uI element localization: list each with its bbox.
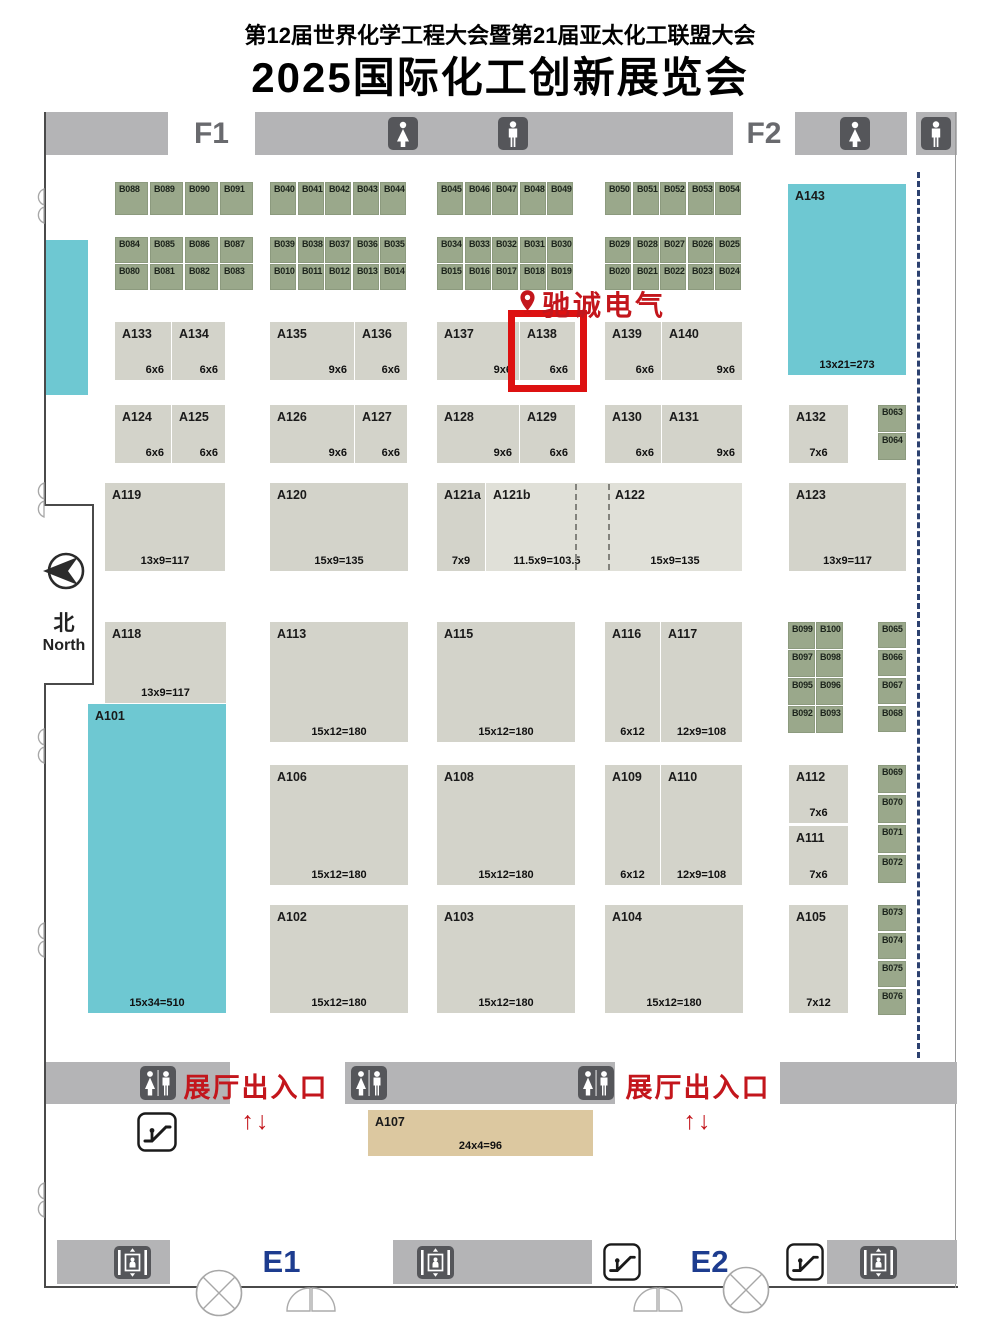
booth-id: B081	[154, 266, 175, 276]
right-wall	[955, 112, 956, 1288]
booth-A120: A12015x9=135	[270, 483, 408, 571]
door-arc-icon	[29, 922, 45, 958]
booth-B093: B093	[816, 706, 843, 733]
booth-id: B048	[524, 184, 545, 194]
top-wall-bar	[46, 112, 168, 155]
booth-size: 9x6	[494, 447, 512, 459]
booth-id: B087	[224, 239, 245, 249]
booth-id: B100	[820, 624, 841, 634]
booth-id: B028	[637, 239, 658, 249]
booth-id: B030	[551, 239, 572, 249]
booth-A115: A11515x12=180	[437, 622, 575, 742]
booth-A138: A1386x6	[520, 322, 575, 380]
booth-id: A122	[615, 488, 645, 502]
booth-B027: B027	[660, 237, 686, 263]
booth-id: A128	[444, 410, 474, 424]
north-notch-wall	[44, 683, 94, 685]
booth-B088: B088	[115, 182, 148, 215]
booth-size: 15x12=180	[437, 869, 575, 881]
booth-B011: B011	[298, 264, 324, 290]
booth-id: A110	[668, 770, 697, 784]
booth-id: B049	[551, 184, 572, 194]
booth-B086: B086	[185, 237, 218, 263]
booth-id: B097	[792, 652, 813, 662]
booth-B048: B048	[520, 182, 546, 215]
restroom-male-icon	[498, 117, 528, 150]
double-door-icon	[632, 1286, 684, 1312]
booth-A112: A1127x6	[789, 765, 848, 823]
booth-id: A103	[444, 910, 474, 924]
booth-A122: A12215x9=135	[608, 483, 742, 571]
booth-size: 12x9=108	[661, 726, 742, 738]
booth-B066: B066	[878, 650, 906, 676]
booth-id: B066	[882, 652, 903, 662]
compass-icon	[37, 587, 91, 604]
booth-B033: B033	[465, 237, 491, 263]
booth-A128: A1289x6	[437, 405, 519, 463]
booth-id: A129	[527, 410, 557, 424]
booth-A131: A1319x6	[662, 405, 742, 463]
booth-id: B089	[154, 184, 175, 194]
booth-size: 11.5x9=103.5	[486, 555, 608, 567]
booth-id: B093	[820, 708, 841, 718]
booth-size: 7x6	[789, 869, 848, 881]
booth-id: B017	[496, 266, 517, 276]
booth-A102: A10215x12=180	[270, 905, 408, 1013]
booth-A140: A1409x6	[662, 322, 742, 380]
booth-id: B042	[329, 184, 350, 194]
booth-id: A106	[277, 770, 307, 784]
booth-size: 7x9	[437, 555, 485, 567]
booth-size: 6x6	[382, 364, 400, 376]
booth-id: B039	[274, 239, 295, 249]
booth-A107: A10724x4=96	[368, 1110, 593, 1156]
booth-id: B092	[792, 708, 813, 718]
booth-id: B043	[357, 184, 378, 194]
booth-id: A138	[527, 327, 557, 341]
booth-B029: B029	[605, 237, 631, 263]
booth-size: 13x9=117	[789, 555, 906, 567]
booth-B054: B054	[715, 182, 741, 215]
booth-B082: B082	[185, 264, 218, 290]
north-label-en: North	[36, 637, 92, 655]
booth-size: 15x9=135	[270, 555, 408, 567]
booth-id: A105	[796, 910, 826, 924]
booth-B065: B065	[878, 622, 906, 648]
booth-size: 6x12	[605, 869, 660, 881]
booth-A121a: A121a7x9	[437, 483, 485, 571]
booth-id: B015	[441, 266, 462, 276]
double-door-icon	[285, 1286, 337, 1312]
escalator-icon	[785, 1243, 825, 1281]
hall-divider-dashed-line	[917, 172, 920, 1058]
booth-A117: A11712x9=108	[661, 622, 742, 742]
entrance-label-right: 展厅出入口 ↑↓	[618, 1066, 778, 1136]
booth-A133: A1336x6	[115, 322, 171, 380]
restroom-female-icon	[840, 117, 870, 150]
booth-A121b: A121b11.5x9=103.5	[486, 483, 608, 571]
booth-id: A102	[277, 910, 307, 924]
booth-size: 9x6	[717, 364, 735, 376]
booth-A116: A1166x12	[605, 622, 660, 742]
booth-A135: A1359x6	[270, 322, 354, 380]
booth-size: 7x6	[789, 447, 848, 459]
location-pin-icon	[518, 289, 537, 319]
hall-label-f2: F2	[733, 112, 795, 155]
exhibitor-marker: 驰诚电气	[518, 284, 666, 324]
booth-id: A131	[669, 410, 699, 424]
booth-id: A112	[796, 770, 825, 784]
booth-id: A121a	[444, 488, 481, 502]
booth-B035: B035	[380, 237, 406, 263]
elevator-icon	[114, 1246, 151, 1279]
booth-id: A119	[112, 488, 141, 502]
booth-id: B085	[154, 239, 175, 249]
booth-B044: B044	[380, 182, 406, 215]
booth-size: 6x6	[200, 364, 218, 376]
booth-A136: A1366x6	[355, 322, 407, 380]
booth-id: B075	[882, 963, 903, 973]
hall-label-f1: F1	[168, 112, 255, 155]
booth-B053: B053	[688, 182, 714, 215]
booth-size: 9x6	[329, 447, 347, 459]
booth-id: A104	[612, 910, 642, 924]
booth-B063: B063	[878, 405, 906, 432]
booth-A104: A10415x12=180	[605, 905, 743, 1013]
revolving-door-icon	[720, 1264, 772, 1316]
booth-id: A108	[444, 770, 474, 784]
booth-B052: B052	[660, 182, 686, 215]
booth-id: A125	[179, 410, 209, 424]
bottom-wall	[44, 1286, 958, 1288]
booth-id: B044	[384, 184, 405, 194]
booth-id: A123	[796, 488, 826, 502]
elevator-icon	[860, 1246, 897, 1279]
booth-B083: B083	[220, 264, 253, 290]
booth-B072: B072	[878, 855, 906, 883]
booth-id: B091	[224, 184, 245, 194]
booth-A134: A1346x6	[172, 322, 225, 380]
exhibitor-name: 驰诚电气	[542, 284, 666, 324]
booth-id: B099	[792, 624, 813, 634]
booth-id: B038	[302, 239, 323, 249]
booth-size: 15x9=135	[608, 555, 742, 567]
booth-id: A101	[95, 709, 125, 723]
booth-id: B051	[637, 184, 658, 194]
booth-B026: B026	[688, 237, 714, 263]
booth-B047: B047	[492, 182, 518, 215]
booth-id: B096	[820, 680, 841, 690]
booth-id: A111	[796, 831, 825, 845]
floorplan-canvas: 第12届世界化学工程大会暨第21届亚太化工联盟大会 2025国际化工创新展览会 …	[0, 0, 1000, 1328]
booth-id: B054	[719, 184, 740, 194]
booth-id: B037	[329, 239, 350, 249]
restroom-unisex-icon	[578, 1066, 614, 1100]
booth-id: B041	[302, 184, 323, 194]
booth-B032: B032	[492, 237, 518, 263]
booth-A126: A1269x6	[270, 405, 354, 463]
booth-id: B083	[224, 266, 245, 276]
booth-size: 6x6	[146, 447, 164, 459]
booth-B087: B087	[220, 237, 253, 263]
booth-size: 15x34=510	[88, 997, 226, 1009]
booth-B010: B010	[270, 264, 296, 290]
north-label-zh: 北	[36, 607, 92, 637]
booth-B017: B017	[492, 264, 518, 290]
door-arc-icon	[29, 728, 45, 764]
booth-id: B068	[882, 708, 903, 718]
booth-B050: B050	[605, 182, 631, 215]
booth-id: A118	[112, 627, 141, 641]
booth-size: 6x6	[636, 364, 654, 376]
booth-B090: B090	[185, 182, 218, 215]
door-arc-icon	[29, 1182, 45, 1218]
booth-size: 6x6	[200, 447, 218, 459]
booth-B097: B097	[788, 650, 815, 677]
booth-id: B064	[882, 435, 903, 445]
booth-id: B067	[882, 680, 903, 690]
booth-B043: B043	[353, 182, 379, 215]
entrance-arrows: ↑↓	[618, 1107, 778, 1136]
booth-id: A115	[444, 627, 473, 641]
booth-id: B036	[357, 239, 378, 249]
entrance-label-left: 展厅出入口 ↑↓	[176, 1066, 336, 1136]
booth-B092: B092	[788, 706, 815, 733]
teal-block	[46, 240, 88, 395]
booth-size: 24x4=96	[368, 1140, 593, 1152]
booth-B064: B064	[878, 433, 906, 460]
booth-A118: A11813x9=117	[105, 622, 226, 703]
booth-B028: B028	[633, 237, 659, 263]
booth-id: B023	[692, 266, 713, 276]
booth-A113: A11315x12=180	[270, 622, 408, 742]
booth-A110: A11012x9=108	[661, 765, 742, 885]
booth-id: A126	[277, 410, 307, 424]
booth-B024: B024	[715, 264, 741, 290]
booth-size: 13x21=273	[788, 359, 906, 371]
booth-divider-dashed-line	[575, 484, 577, 570]
restroom-male-icon	[921, 117, 951, 150]
booth-B080: B080	[115, 264, 148, 290]
booth-size: 6x6	[550, 447, 568, 459]
booth-B100: B100	[816, 622, 843, 649]
booth-id: A113	[277, 627, 306, 641]
booth-A137: A1379x6	[437, 322, 519, 380]
booth-B049: B049	[547, 182, 573, 215]
booth-B023: B023	[688, 264, 714, 290]
top-wall-bar	[255, 112, 733, 155]
booth-A127: A1276x6	[355, 405, 407, 463]
booth-A103: A10315x12=180	[437, 905, 575, 1013]
booth-size: 15x12=180	[437, 997, 575, 1009]
booth-A143: A14313x21=273	[788, 184, 906, 375]
booth-B040: B040	[270, 182, 296, 215]
booth-id: B046	[469, 184, 490, 194]
booth-A129: A1296x6	[520, 405, 575, 463]
booth-B084: B084	[115, 237, 148, 263]
booth-id: B031	[524, 239, 545, 249]
booth-B039: B039	[270, 237, 296, 263]
booth-id: B053	[692, 184, 713, 194]
booth-id: A133	[122, 327, 152, 341]
booth-size: 13x9=117	[105, 687, 226, 699]
booth-id: B022	[664, 266, 685, 276]
booth-A105: A1057x12	[789, 905, 848, 1013]
booth-id: A132	[796, 410, 826, 424]
booth-id: B010	[274, 266, 295, 276]
booth-B095: B095	[788, 678, 815, 705]
booth-size: 9x6	[329, 364, 347, 376]
booth-size: 12x9=108	[661, 869, 742, 881]
booth-id: B032	[496, 239, 517, 249]
booth-B067: B067	[878, 678, 906, 704]
booth-id: B074	[882, 935, 903, 945]
booth-size: 15x12=180	[270, 997, 408, 1009]
booth-id: A127	[362, 410, 392, 424]
booth-B041: B041	[298, 182, 324, 215]
booth-id: A109	[612, 770, 642, 784]
booth-A123: A12313x9=117	[789, 483, 906, 571]
booth-B045: B045	[437, 182, 463, 215]
booth-id: B045	[441, 184, 462, 194]
booth-id: A116	[612, 627, 641, 641]
booth-id: A143	[795, 189, 825, 203]
booth-id: B088	[119, 184, 140, 194]
booth-size: 15x12=180	[270, 726, 408, 738]
booth-id: B033	[469, 239, 490, 249]
booth-size: 6x6	[382, 447, 400, 459]
booth-id: B080	[119, 266, 140, 276]
booth-id: B073	[882, 907, 903, 917]
booth-B025: B025	[715, 237, 741, 263]
booth-id: B029	[609, 239, 630, 249]
escalator-icon	[137, 1112, 177, 1152]
booth-B030: B030	[547, 237, 573, 263]
booth-size: 7x6	[789, 807, 848, 819]
booth-id: B063	[882, 407, 903, 417]
booth-id: B025	[719, 239, 740, 249]
booth-B034: B034	[437, 237, 463, 263]
booth-id: B084	[119, 239, 140, 249]
bottom-corridor-bar	[780, 1062, 957, 1104]
booth-B012: B012	[325, 264, 351, 290]
booth-id: A117	[668, 627, 697, 641]
booth-id: A121b	[493, 488, 531, 502]
booth-id: B035	[384, 239, 405, 249]
booth-size: 15x12=180	[605, 997, 743, 1009]
north-notch-wall	[92, 504, 94, 685]
booth-B099: B099	[788, 622, 815, 649]
booth-B069: B069	[878, 765, 906, 793]
north-indicator: 北 North	[36, 546, 92, 655]
booth-A132: A1327x6	[789, 405, 848, 463]
booth-id: B013	[357, 266, 378, 276]
booth-id: A124	[122, 410, 152, 424]
booth-id: B011	[302, 266, 322, 276]
booth-id: B095	[792, 680, 813, 690]
booth-A101: A10115x34=510	[88, 704, 226, 1013]
booth-id: B065	[882, 624, 903, 634]
booth-size: 6x12	[605, 726, 660, 738]
booth-id: B021	[637, 266, 658, 276]
booth-A139: A1396x6	[605, 322, 661, 380]
booth-B031: B031	[520, 237, 546, 263]
booth-B070: B070	[878, 795, 906, 823]
north-notch-wall	[44, 504, 94, 506]
booth-B091: B091	[220, 182, 253, 215]
booth-id: B034	[441, 239, 462, 249]
booth-B042: B042	[325, 182, 351, 215]
booth-id: A120	[277, 488, 307, 502]
booth-size: 6x6	[146, 364, 164, 376]
booth-B014: B014	[380, 264, 406, 290]
booth-B046: B046	[465, 182, 491, 215]
booth-id: B071	[882, 827, 903, 837]
booth-size: 7x12	[789, 997, 848, 1009]
escalator-icon	[602, 1243, 642, 1281]
booth-id: A107	[375, 1115, 405, 1129]
booth-id: A135	[277, 327, 307, 341]
booth-id: B050	[609, 184, 630, 194]
booth-id: B052	[664, 184, 685, 194]
booth-id: A139	[612, 327, 642, 341]
booth-size: 6x6	[636, 447, 654, 459]
booth-B016: B016	[465, 264, 491, 290]
booth-size: 6x6	[550, 364, 568, 376]
booth-id: B020	[609, 266, 630, 276]
booth-id: B024	[719, 266, 740, 276]
booth-size: 13x9=117	[105, 555, 225, 567]
door-arc-icon	[29, 482, 45, 518]
booth-id: B076	[882, 991, 903, 1001]
booth-id: B016	[469, 266, 490, 276]
booth-B015: B015	[437, 264, 463, 290]
booth-A130: A1306x6	[605, 405, 661, 463]
booth-id: B070	[882, 797, 903, 807]
booth-B051: B051	[633, 182, 659, 215]
restroom-unisex-icon	[140, 1066, 176, 1100]
booth-size: 15x12=180	[437, 726, 575, 738]
booth-id: B086	[189, 239, 210, 249]
booth-id: B014	[384, 266, 405, 276]
booth-id: A136	[362, 327, 392, 341]
booth-B089: B089	[150, 182, 183, 215]
booth-id: B098	[820, 652, 841, 662]
booth-id: B047	[496, 184, 517, 194]
booth-B075: B075	[878, 961, 906, 987]
booth-A125: A1256x6	[172, 405, 225, 463]
booth-id: A134	[179, 327, 209, 341]
booth-size: 9x6	[494, 364, 512, 376]
booth-B098: B098	[816, 650, 843, 677]
booth-B068: B068	[878, 706, 906, 732]
restroom-female-icon	[388, 117, 418, 150]
booth-divider-dashed-line	[608, 484, 610, 570]
booth-id: B018	[524, 266, 545, 276]
booth-id: B019	[551, 266, 572, 276]
booth-B076: B076	[878, 989, 906, 1015]
restroom-unisex-icon	[351, 1066, 387, 1100]
door-arc-icon	[29, 188, 45, 224]
booth-A106: A10615x12=180	[270, 765, 408, 885]
booth-id: A140	[669, 327, 699, 341]
booth-size: 15x12=180	[270, 869, 408, 881]
booth-B038: B038	[298, 237, 324, 263]
booth-B096: B096	[816, 678, 843, 705]
booth-A111: A1117x6	[789, 826, 848, 885]
booth-id: B012	[329, 266, 350, 276]
elevator-icon	[417, 1246, 454, 1279]
